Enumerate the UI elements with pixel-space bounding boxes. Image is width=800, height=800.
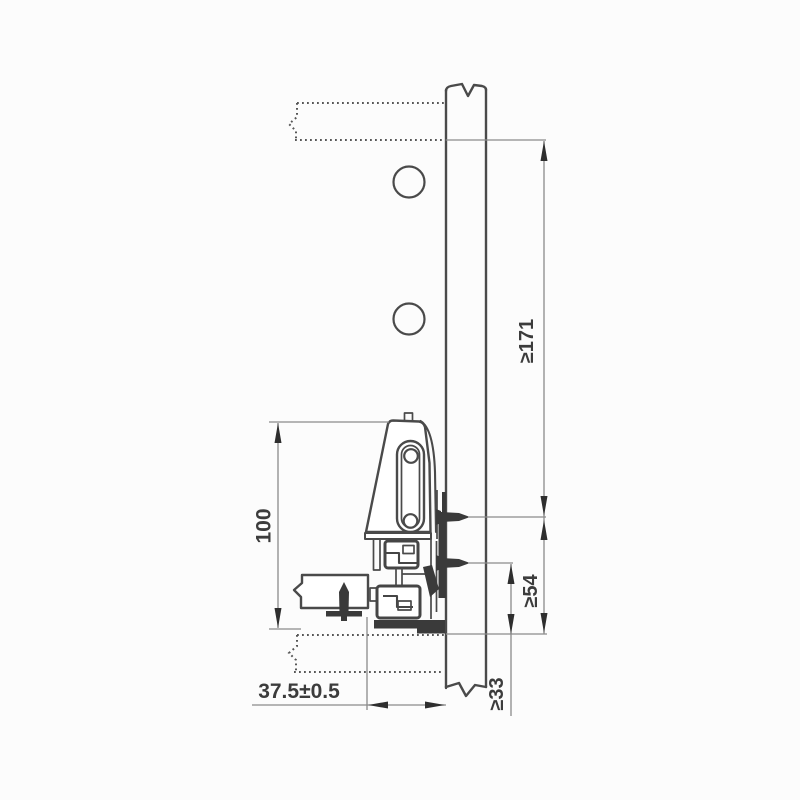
cabinet-back-panel: [446, 84, 486, 696]
dashed-upper-position: [289, 103, 446, 140]
rail-bottom-step: [417, 620, 445, 634]
rail-bottom-plate: [374, 620, 423, 629]
hook-connector: [396, 568, 402, 586]
drawing-svg: 100 37.5±0.5 ≥171 ≥54 ≥33: [0, 0, 800, 800]
arrow-up: [541, 141, 548, 161]
dimension-label-37-5: 37.5±0.5: [258, 680, 340, 703]
bottom-screw-stub: [341, 617, 347, 622]
bottom-panel-outline: [294, 575, 368, 608]
lower-screw-head: [436, 555, 441, 571]
dashed-left-break: [289, 103, 297, 140]
panel-bottom-break: [446, 683, 486, 696]
rail-hook-profiles: [365, 533, 445, 634]
dimension-label-171: ≥171: [516, 319, 538, 363]
arrow-down: [541, 613, 548, 633]
panel-holes: [394, 167, 425, 335]
dimension-label-54: ≥54: [520, 574, 542, 608]
panel-hole-lower: [394, 304, 425, 335]
arrow-left: [368, 702, 388, 709]
arrow-down: [508, 614, 515, 634]
dimension-33: ≥33: [468, 563, 515, 716]
arrow-down: [541, 496, 548, 516]
technical-drawing-canvas: 100 37.5±0.5 ≥171 ≥54 ≥33: [0, 0, 800, 800]
arrow-up: [541, 520, 548, 540]
drawer-bottom-panel: [294, 575, 368, 621]
bottom-screw-washer: [326, 611, 362, 617]
dimension-37-5: 37.5±0.5: [252, 617, 446, 710]
bracket-rear-plate-top: [442, 492, 446, 514]
upper-screw: [441, 512, 470, 522]
bracket-rear-plate: [439, 512, 447, 598]
arrow-up: [508, 564, 515, 584]
arrow-down: [275, 608, 282, 628]
arrow-up: [275, 423, 282, 443]
dimension-54: ≥54: [446, 520, 548, 634]
lower-screw: [441, 558, 470, 568]
panel-hole-upper: [394, 167, 425, 198]
bracket-bottom-flange: [365, 533, 431, 539]
left-stub: [374, 539, 381, 570]
dimension-label-33: ≥33: [486, 677, 508, 710]
panel-top-break: [446, 84, 486, 96]
dashed-left-break-lower: [289, 635, 297, 672]
arrow-right: [425, 702, 445, 709]
dimension-label-100: 100: [253, 508, 276, 543]
upper-screw-head: [436, 509, 441, 525]
